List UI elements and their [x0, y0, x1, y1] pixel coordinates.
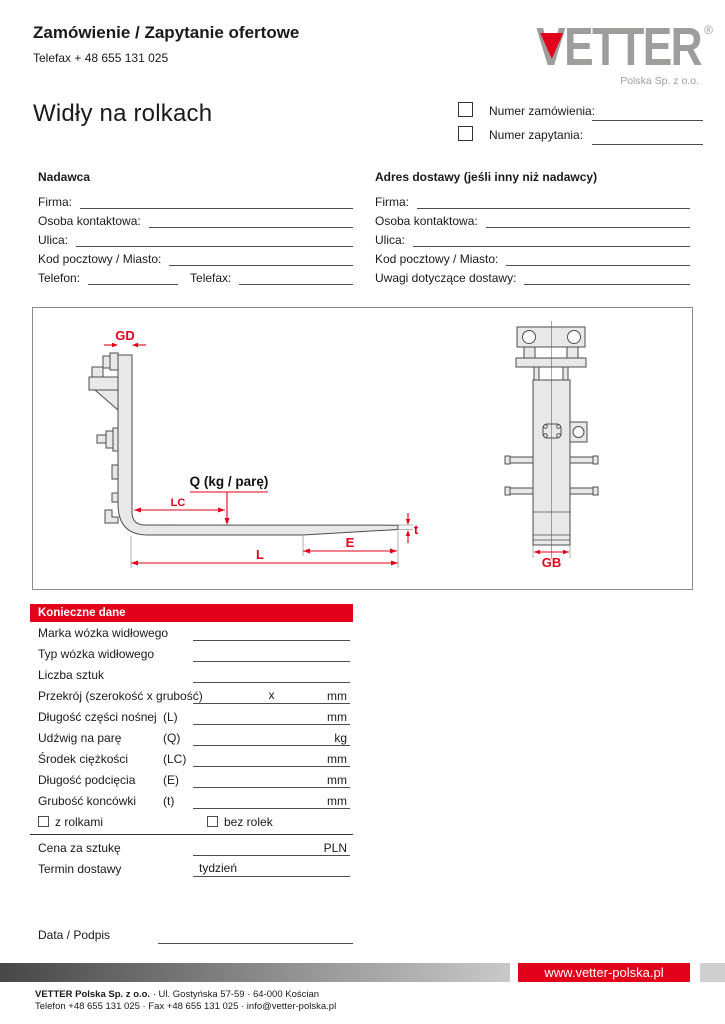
- document-title: Zamówienie / Zapytanie ofertowe: [33, 23, 299, 43]
- inquiry-number-label: Numer zapytania:: [489, 128, 583, 142]
- table-row: Udźwig na parę (Q) kg: [30, 727, 353, 748]
- delivery-street-input[interactable]: [413, 231, 690, 247]
- footer-address-line: VETTER Polska Sp. z o.o. · Ul. Gostyńska…: [35, 989, 336, 1001]
- row-unit: mm: [327, 773, 347, 787]
- with-rollers-checkbox[interactable]: [38, 816, 49, 827]
- table-row: Marka wózka widłowego: [30, 622, 353, 643]
- row-label: Typ wózka widłowego: [38, 647, 154, 661]
- row-unit: PLN: [324, 841, 347, 855]
- dim-label-gb: GB: [542, 555, 562, 570]
- row-label: Udźwig na parę: [38, 731, 121, 745]
- row-code: (L): [163, 710, 178, 724]
- website-link[interactable]: www.vetter-polska.pl: [518, 963, 690, 982]
- brand-input[interactable]: [193, 622, 350, 641]
- phone-input[interactable]: [88, 269, 178, 285]
- dim-label-gd: GD: [115, 328, 135, 343]
- tip-thickness-input[interactable]: mm: [193, 790, 350, 809]
- row-code: (LC): [163, 752, 186, 766]
- field-label: Osoba kontaktowa:: [375, 214, 478, 228]
- technical-drawing: GD Q (kg / parę) LC E L t: [32, 307, 693, 590]
- street-input[interactable]: [76, 231, 353, 247]
- signature-label: Data / Podpis: [38, 928, 110, 942]
- price-row: Cena za sztukę PLN: [30, 837, 353, 858]
- order-number-checkbox[interactable]: [458, 102, 473, 117]
- delivery-contact-input[interactable]: [486, 212, 690, 228]
- row-code: (Q): [163, 731, 180, 745]
- footer-address: VETTER Polska Sp. z o.o. · Ul. Gostyńska…: [35, 989, 336, 1013]
- logo-red-triangle-icon: [540, 33, 563, 59]
- fax-label: Telefax:: [190, 271, 231, 285]
- dim-label-e: E: [346, 535, 355, 550]
- form-row: Firma:: [375, 190, 690, 209]
- footer-contact-line: Telefon +48 655 131 025 · Fax +48 655 13…: [35, 1001, 336, 1013]
- load-center-input[interactable]: mm: [193, 748, 350, 767]
- delivery-section: Adres dostawy (jeśli inny niż nadawcy) F…: [375, 170, 690, 285]
- form-row: Ulica:: [38, 228, 353, 247]
- order-number-label: Numer zamówienia:: [489, 104, 595, 118]
- form-row: Uwagi dotyczące dostawy:: [375, 266, 690, 285]
- price-input[interactable]: PLN: [193, 837, 350, 856]
- firma-input[interactable]: [80, 193, 353, 209]
- capacity-input[interactable]: kg: [193, 727, 350, 746]
- form-row: Firma:: [38, 190, 353, 209]
- delivery-remarks-input[interactable]: [524, 269, 690, 285]
- fax-input[interactable]: [239, 269, 353, 285]
- dim-label-l: L: [256, 547, 264, 562]
- table-heading: Konieczne dane: [30, 604, 353, 622]
- row-unit: mm: [327, 710, 347, 724]
- phone-label: Telefon:: [38, 271, 80, 285]
- row-code: (E): [163, 773, 179, 787]
- with-rollers-label: z rolkami: [55, 815, 103, 829]
- without-rollers-checkbox[interactable]: [207, 816, 218, 827]
- form-row: Telefon: Telefax:: [38, 266, 353, 285]
- row-code: (t): [163, 794, 174, 808]
- quantity-input[interactable]: [193, 664, 350, 683]
- page-title: Widły na rolkach: [33, 100, 212, 128]
- table-row: Typ wózka widłowego: [30, 643, 353, 664]
- row-unit: mm: [327, 752, 347, 766]
- field-label: Ulica:: [375, 233, 405, 247]
- row-label: Długość części nośnej: [38, 710, 157, 724]
- vetter-logo: VETTER ® Polska Sp. z o.o.: [500, 24, 700, 86]
- rollers-option-row: z rolkami bez rolek: [30, 811, 353, 832]
- field-label: Uwagi dotyczące dostawy:: [375, 271, 516, 285]
- row-label: Liczba sztuk: [38, 668, 104, 682]
- footer-company: VETTER Polska Sp. z o.o.: [35, 989, 150, 1000]
- row-label: Grubość koncówki: [38, 794, 136, 808]
- form-row: Ulica:: [375, 228, 690, 247]
- table-row: Środek ciężkości (LC) mm: [30, 748, 353, 769]
- row-unit: mm: [327, 689, 347, 703]
- dim-label-lc: LC: [171, 497, 186, 509]
- form-row: Osoba kontaktowa:: [375, 209, 690, 228]
- form-row: Kod pocztowy / Miasto:: [38, 247, 353, 266]
- required-data-table: Konieczne dane Marka wózka widłowego Typ…: [30, 604, 353, 879]
- row-label: Przekrój (szerokość x grubość): [38, 689, 203, 703]
- cross-section-input[interactable]: x mm: [193, 685, 350, 704]
- footer-street: · Ul. Gostyńska 57-59 · 64-000 Kościan: [150, 989, 319, 1000]
- length-input[interactable]: mm: [193, 706, 350, 725]
- delivery-time-row: Termin dostawy tydzień: [30, 858, 353, 879]
- delivery-heading: Adres dostawy (jeśli inny niż nadawcy): [375, 170, 690, 190]
- row-unit: mm: [327, 794, 347, 808]
- telefax-line: Telefax + 48 655 131 025: [33, 51, 168, 65]
- table-row: Grubość koncówki (t) mm: [30, 790, 353, 811]
- row-label: Długość podcięcia: [38, 773, 135, 787]
- field-label: Firma:: [38, 195, 72, 209]
- field-label: Firma:: [375, 195, 409, 209]
- row-label: Środek ciężkości: [38, 752, 128, 766]
- row-value: tydzień: [193, 861, 237, 875]
- postcode-city-input[interactable]: [169, 250, 353, 266]
- row-label: Termin dostawy: [38, 862, 121, 876]
- form-row: Osoba kontaktowa:: [38, 209, 353, 228]
- field-label: Osoba kontaktowa:: [38, 214, 141, 228]
- contact-person-input[interactable]: [149, 212, 353, 228]
- order-form-page: Zamówienie / Zapytanie ofertowe Telefax …: [0, 0, 725, 1024]
- row-label: Marka wózka widłowego: [38, 626, 168, 640]
- registered-trademark-icon: ®: [704, 23, 713, 37]
- delivery-postcode-input[interactable]: [506, 250, 690, 266]
- row-value: x: [269, 688, 275, 702]
- table-row: Przekrój (szerokość x grubość) x mm: [30, 685, 353, 706]
- inquiry-number-field[interactable]: [592, 144, 703, 145]
- delivery-time-input[interactable]: tydzień: [193, 858, 350, 877]
- row-unit: kg: [334, 731, 347, 745]
- table-row: Liczba sztuk: [30, 664, 353, 685]
- logo-wordmark: VETTER: [536, 24, 701, 70]
- sender-heading: Nadawca: [38, 170, 353, 190]
- table-row: Długość części nośnej (L) mm: [30, 706, 353, 727]
- footer-corner-segment: [700, 963, 725, 982]
- dim-label-t: t: [414, 522, 419, 537]
- table-row: Długość podcięcia (E) mm: [30, 769, 353, 790]
- row-label: Cena za sztukę: [38, 841, 121, 855]
- field-label: Kod pocztowy / Miasto:: [375, 252, 498, 266]
- field-label: Ulica:: [38, 233, 68, 247]
- delivery-firma-input[interactable]: [417, 193, 690, 209]
- field-label: Kod pocztowy / Miasto:: [38, 252, 161, 266]
- signature-field[interactable]: [158, 943, 353, 944]
- dim-label-q: Q (kg / parę): [190, 474, 269, 489]
- order-number-field[interactable]: [592, 120, 703, 121]
- footer-gradient-bar: [0, 963, 510, 982]
- without-rollers-label: bez rolek: [224, 815, 273, 829]
- form-row: Kod pocztowy / Miasto:: [375, 247, 690, 266]
- sender-section: Nadawca Firma: Osoba kontaktowa: Ulica: …: [38, 170, 353, 285]
- undercut-input[interactable]: mm: [193, 769, 350, 788]
- type-input[interactable]: [193, 643, 350, 662]
- inquiry-number-checkbox[interactable]: [458, 126, 473, 141]
